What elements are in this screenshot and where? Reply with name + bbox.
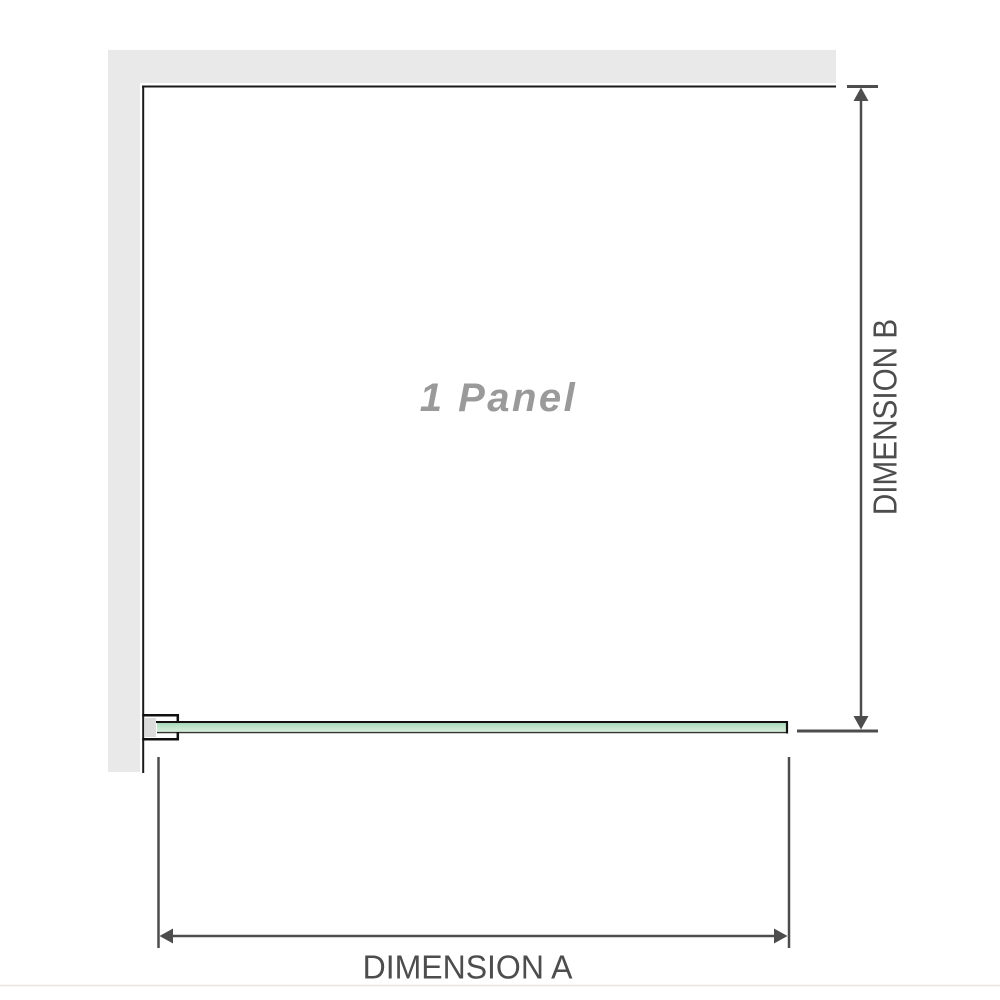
- svg-text:DIMENSION B: DIMENSION B: [867, 319, 904, 515]
- svg-text:1 Panel: 1 Panel: [420, 376, 578, 420]
- svg-text:DIMENSION A: DIMENSION A: [363, 949, 573, 986]
